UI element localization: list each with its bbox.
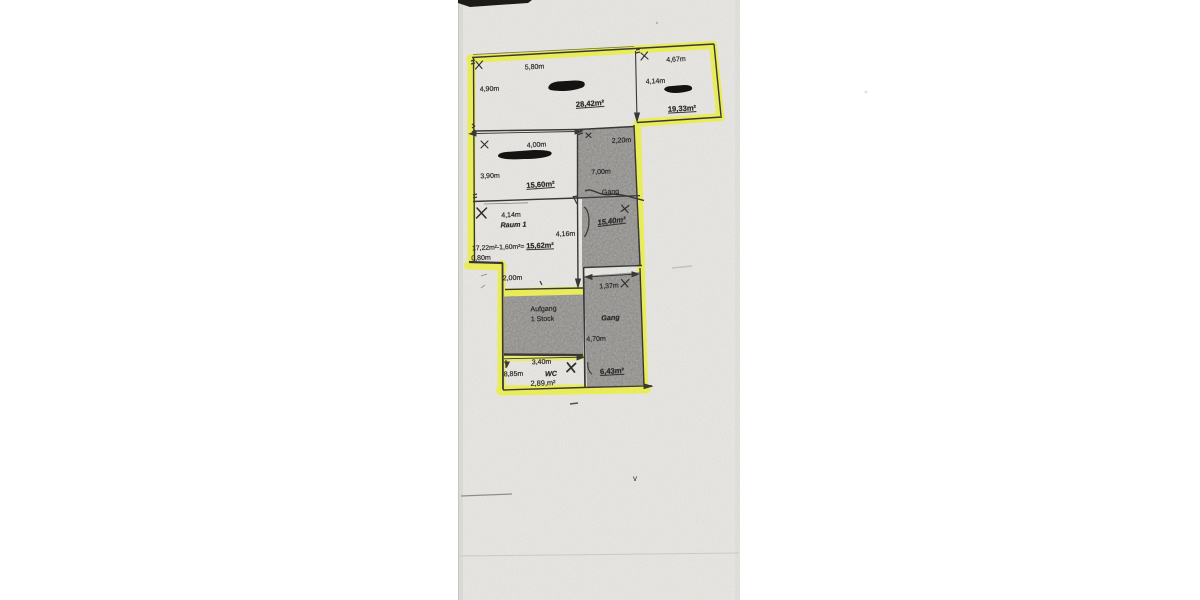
svg-text:Aufgang: Aufgang [530, 306, 556, 314]
svg-text:4,14m: 4,14m [646, 78, 666, 86]
svg-text:4,14m: 4,14m [501, 212, 521, 220]
svg-text:2,00m: 2,00m [503, 275, 523, 283]
svg-text:4,00m: 4,00m [527, 141, 547, 149]
svg-text:4,16m: 4,16m [556, 231, 576, 239]
svg-text:Gang: Gang [602, 189, 620, 197]
svg-text:1,37m: 1,37m [599, 282, 619, 290]
svg-text:Gang: Gang [601, 313, 620, 323]
svg-text:WC: WC [545, 369, 558, 378]
svg-text:8,85m: 8,85m [504, 371, 524, 379]
svg-text:1 Stock: 1 Stock [531, 316, 555, 324]
svg-text:3,90m: 3,90m [480, 173, 500, 181]
svg-text:4,90m: 4,90m [480, 86, 500, 94]
svg-text:2,89,m²: 2,89,m² [530, 378, 556, 388]
svg-text:7,00m: 7,00m [591, 168, 611, 176]
svg-text:v: v [633, 474, 637, 483]
svg-text:2,20m: 2,20m [612, 137, 632, 145]
svg-text:19,33m²: 19,33m² [668, 103, 697, 113]
svg-text:5,80m: 5,80m [525, 63, 545, 71]
svg-text:6,43m²: 6,43m² [600, 366, 625, 376]
svg-text:4,70m: 4,70m [586, 336, 606, 344]
svg-text:3,40m: 3,40m [532, 359, 552, 367]
svg-text:4,67m: 4,67m [666, 56, 686, 64]
svg-text:Raum 1: Raum 1 [500, 220, 526, 230]
svg-text:0,80m: 0,80m [471, 255, 491, 263]
